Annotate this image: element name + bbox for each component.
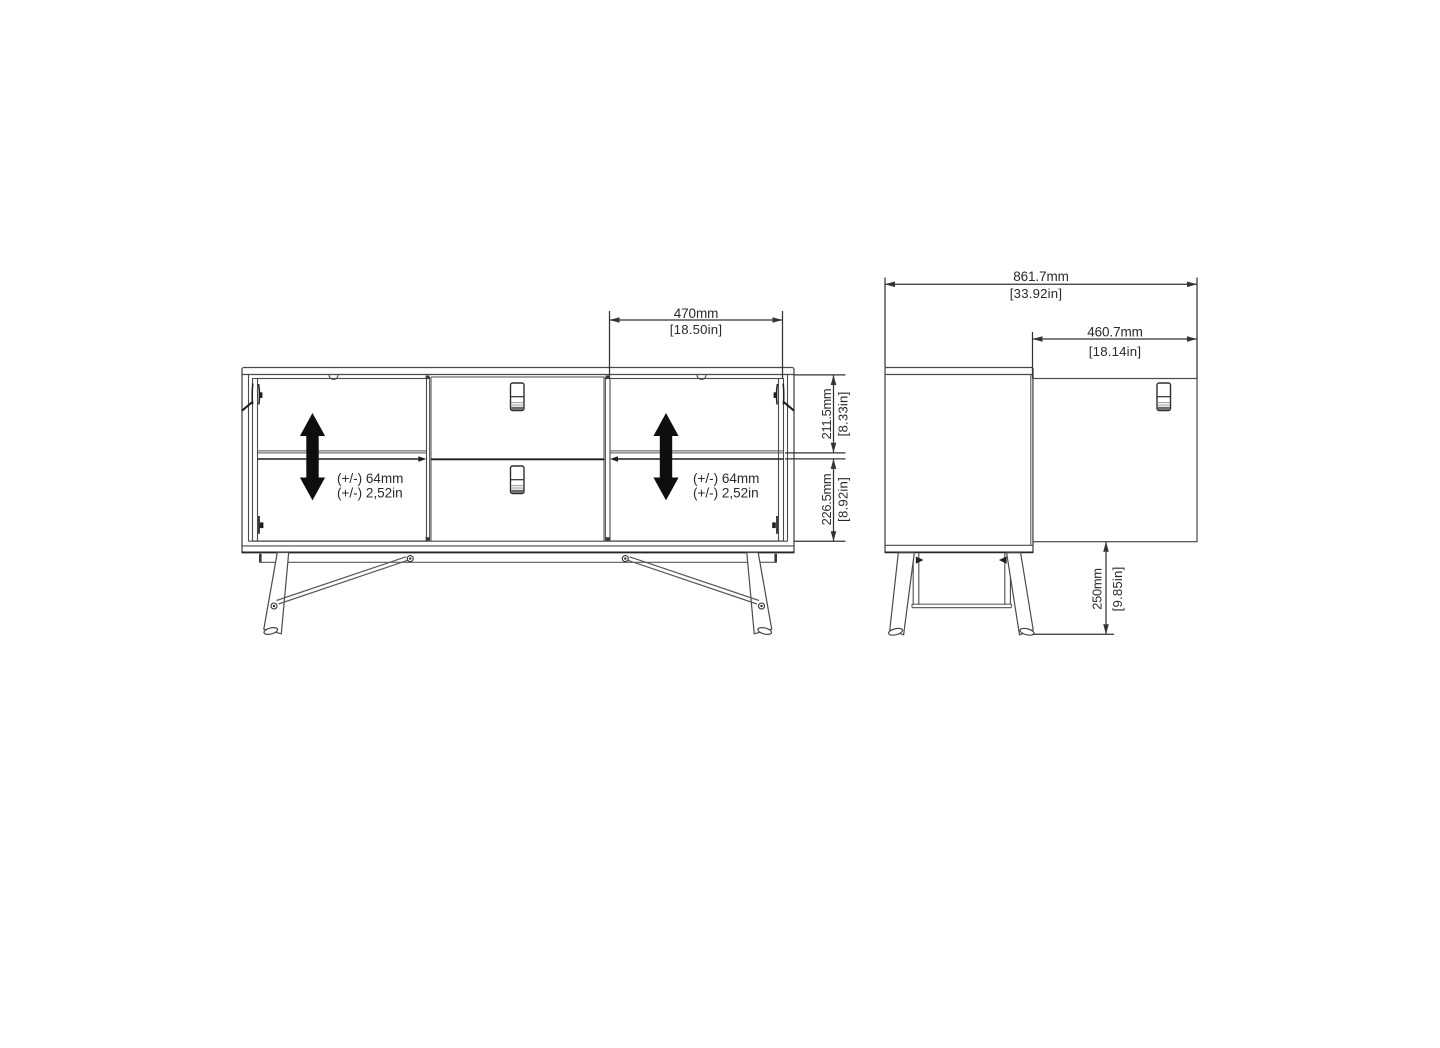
svg-text:211.5mm: 211.5mm: [819, 389, 834, 440]
svg-text:[18.50in]: [18.50in]: [670, 322, 722, 337]
svg-text:[18.14in]: [18.14in]: [1089, 344, 1141, 359]
svg-text:460.7mm: 460.7mm: [1087, 325, 1143, 340]
svg-text:861.7mm: 861.7mm: [1013, 269, 1069, 284]
svg-text:470mm: 470mm: [674, 306, 719, 321]
svg-text:[8.33in]: [8.33in]: [836, 392, 851, 437]
svg-text:(+/-) 2,52in: (+/-) 2,52in: [693, 486, 759, 501]
svg-text:[8.92in]: [8.92in]: [836, 477, 851, 522]
svg-text:[33.92in]: [33.92in]: [1010, 286, 1062, 301]
svg-text:250mm: 250mm: [1090, 568, 1105, 609]
svg-text:226.5mm: 226.5mm: [819, 474, 834, 526]
svg-text:[9.85in]: [9.85in]: [1110, 567, 1125, 612]
svg-text:(+/-) 64mm: (+/-) 64mm: [337, 471, 403, 486]
svg-text:(+/-) 2,52in: (+/-) 2,52in: [337, 486, 403, 501]
svg-text:(+/-) 64mm: (+/-) 64mm: [693, 471, 759, 486]
